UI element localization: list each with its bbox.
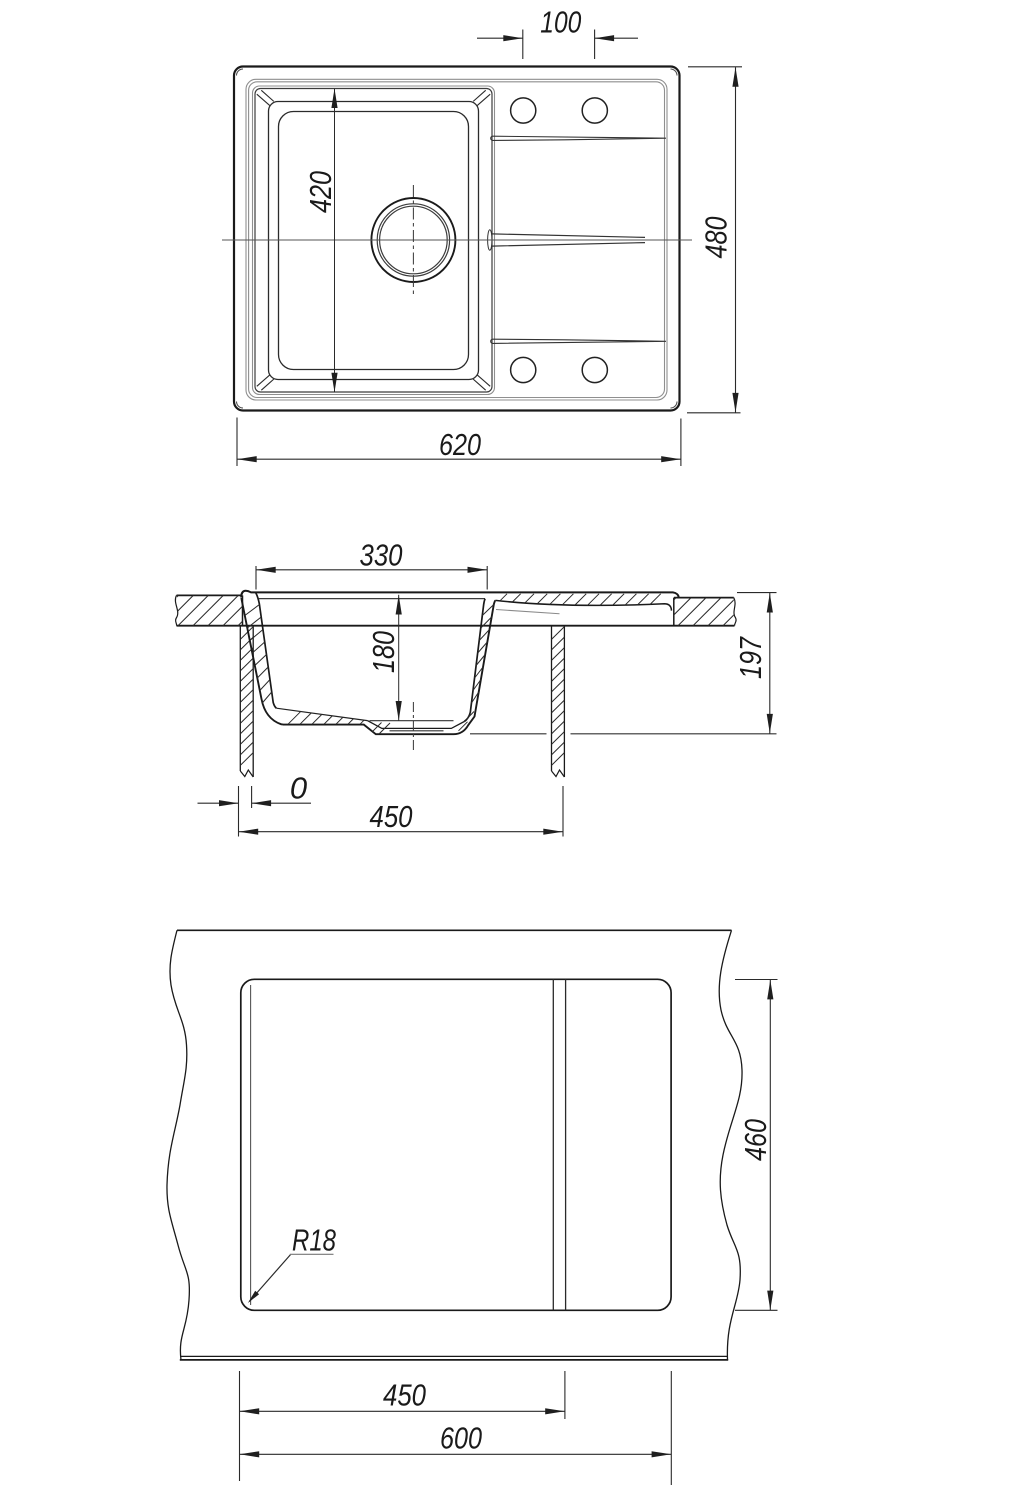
svg-text:0: 0: [290, 771, 307, 806]
svg-text:420: 420: [303, 171, 338, 213]
svg-text:330: 330: [360, 537, 403, 572]
svg-text:480: 480: [699, 217, 734, 259]
svg-text:450: 450: [383, 1378, 426, 1413]
svg-text:450: 450: [370, 799, 413, 834]
svg-text:197: 197: [733, 636, 768, 679]
svg-text:R18: R18: [292, 1223, 337, 1258]
svg-text:620: 620: [439, 427, 481, 462]
svg-text:100: 100: [540, 5, 581, 40]
svg-text:460: 460: [738, 1119, 773, 1161]
svg-text:180: 180: [366, 631, 401, 673]
svg-text:600: 600: [440, 1421, 482, 1456]
